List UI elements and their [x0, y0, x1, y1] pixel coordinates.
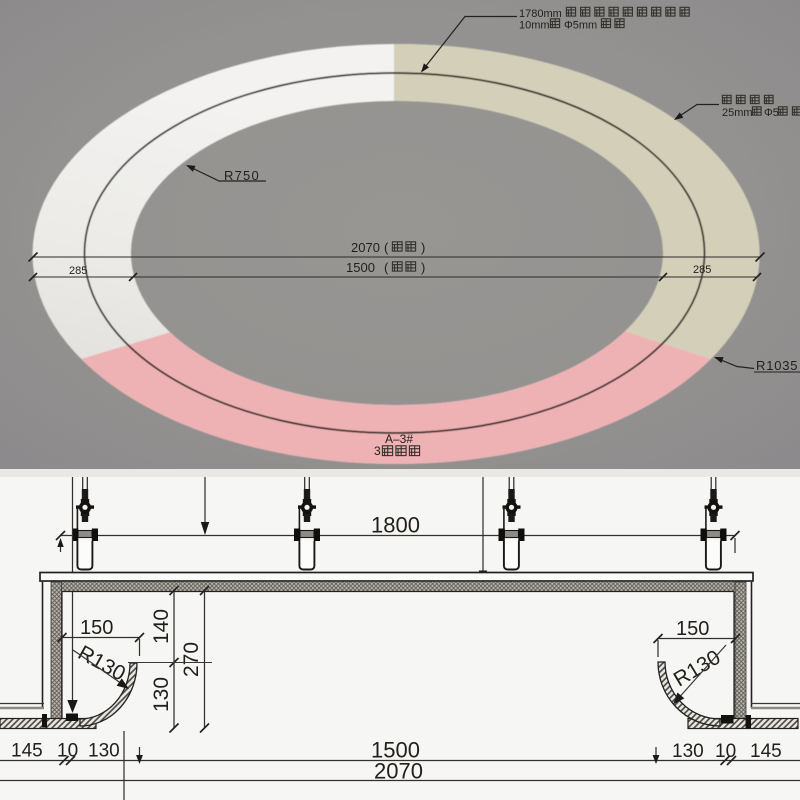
- svg-text:130: 130: [150, 677, 173, 712]
- svg-text:10mm: 10mm: [519, 20, 550, 32]
- svg-text:A–3#: A–3#: [385, 432, 413, 446]
- svg-text:): ): [421, 240, 425, 255]
- svg-text:1780mm: 1780mm: [519, 8, 562, 20]
- svg-text:Φ5: Φ5: [764, 107, 779, 119]
- svg-text:(: (: [384, 240, 389, 255]
- svg-text:1500: 1500: [346, 260, 375, 275]
- svg-text:10: 10: [57, 741, 78, 762]
- svg-text:285: 285: [69, 265, 87, 277]
- svg-text:140: 140: [150, 609, 173, 644]
- svg-text:(: (: [384, 260, 389, 275]
- svg-text:145: 145: [750, 741, 782, 762]
- svg-text:2070: 2070: [351, 240, 380, 255]
- svg-text:150: 150: [80, 617, 113, 639]
- svg-text:2070: 2070: [374, 759, 423, 784]
- svg-text:R1035: R1035: [756, 358, 798, 373]
- svg-text:3: 3: [374, 444, 381, 458]
- svg-text:1800: 1800: [371, 513, 420, 538]
- svg-text:10: 10: [715, 741, 736, 762]
- svg-text:Φ5mm: Φ5mm: [564, 20, 597, 32]
- svg-text:25mm: 25mm: [722, 107, 753, 119]
- svg-text:145: 145: [11, 741, 43, 762]
- svg-text:130: 130: [88, 741, 120, 762]
- svg-text:285: 285: [693, 264, 711, 276]
- svg-text:130: 130: [672, 741, 704, 762]
- svg-text:150: 150: [676, 618, 709, 640]
- svg-text:270: 270: [180, 642, 203, 677]
- svg-text:): ): [421, 260, 425, 275]
